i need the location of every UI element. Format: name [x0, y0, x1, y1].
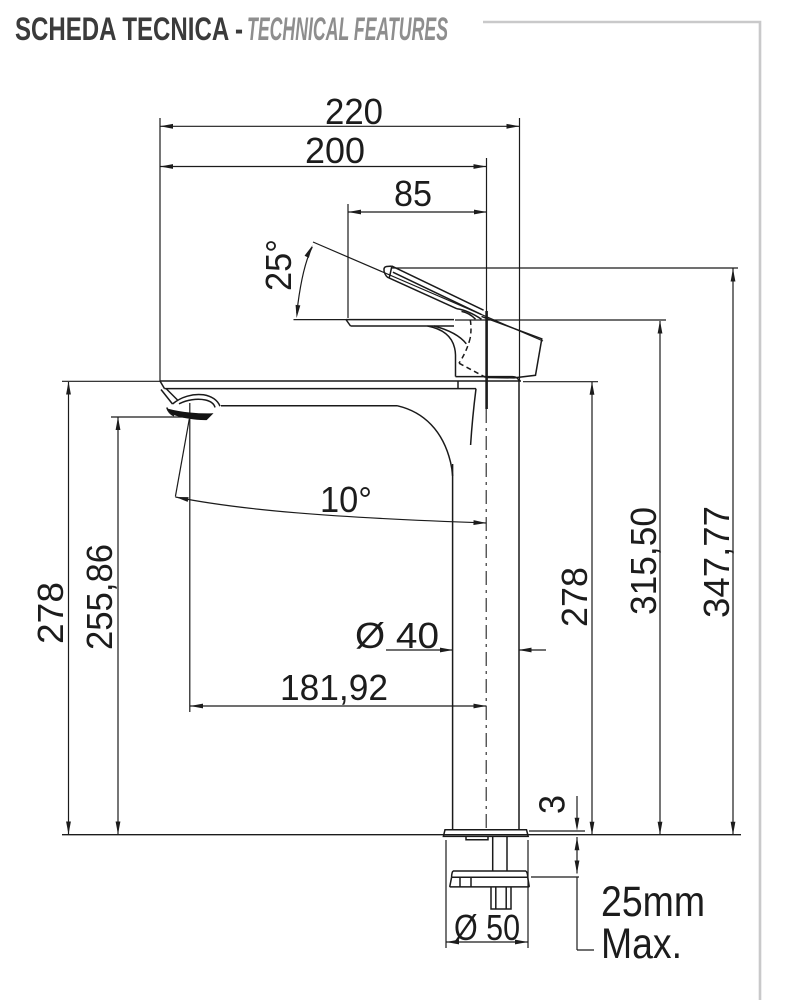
svg-text:TECHNICAL FEATURES: TECHNICAL FEATURES	[247, 11, 448, 47]
svg-text:278: 278	[554, 567, 595, 627]
svg-text:181,92: 181,92	[280, 667, 388, 708]
svg-text:220: 220	[325, 91, 383, 132]
svg-text:315,50: 315,50	[623, 507, 664, 615]
svg-text:Ø 40: Ø 40	[355, 615, 439, 656]
svg-text:3: 3	[532, 795, 573, 814]
svg-text:25°: 25°	[258, 239, 299, 291]
svg-text:25mm: 25mm	[601, 878, 705, 926]
svg-text:278: 278	[30, 582, 71, 644]
svg-text:255,86: 255,86	[79, 544, 120, 650]
svg-text:Ø 50: Ø 50	[454, 907, 520, 948]
svg-text:10°: 10°	[320, 479, 372, 520]
svg-text:Max.: Max.	[601, 920, 682, 968]
svg-text:SCHEDA TECNICA -: SCHEDA TECNICA -	[15, 11, 243, 47]
svg-text:347,77: 347,77	[696, 506, 737, 618]
svg-text:85: 85	[394, 173, 432, 214]
svg-text:200: 200	[305, 130, 365, 171]
